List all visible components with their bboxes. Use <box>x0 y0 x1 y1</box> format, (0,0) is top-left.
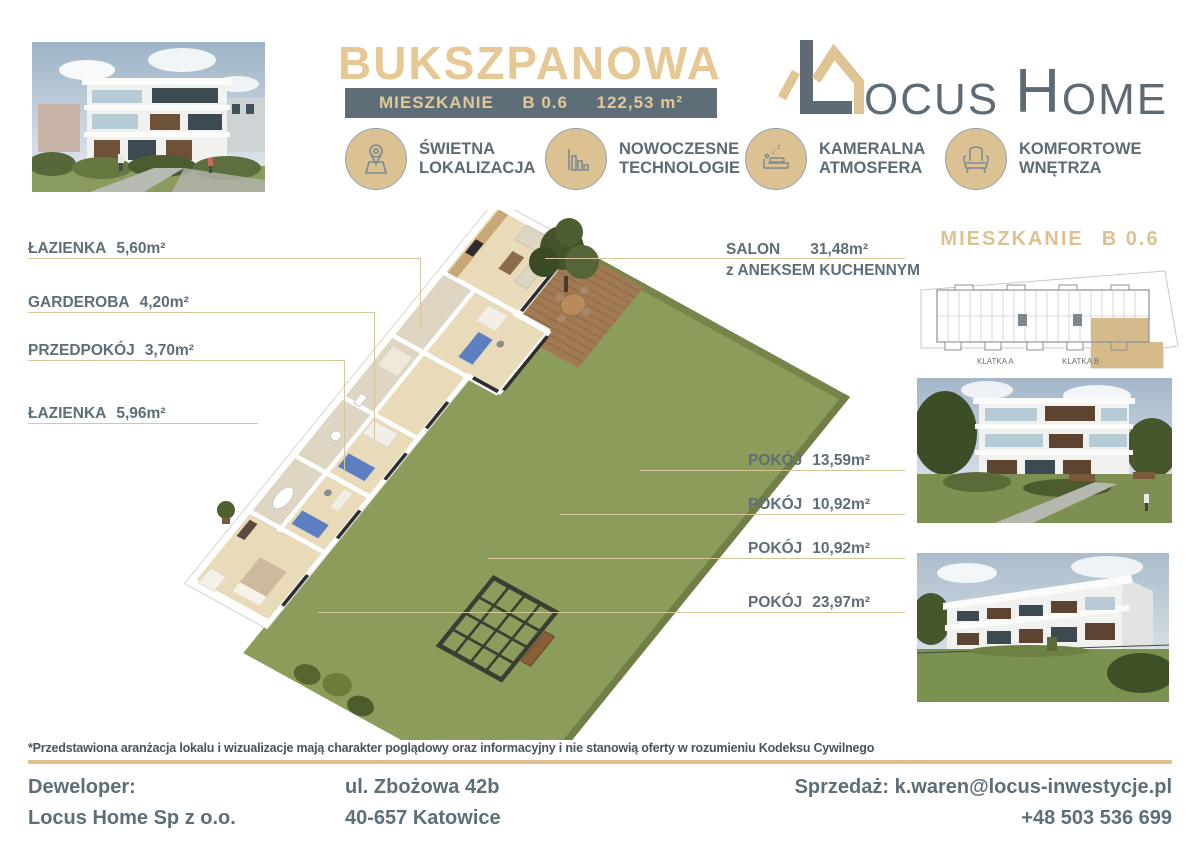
room-label-lazienka-2: ŁAZIENKA5,96m² <box>28 405 165 423</box>
building-photo-side-1 <box>917 378 1172 523</box>
developer-label: Deweloper: <box>28 772 236 803</box>
footer-divider <box>28 760 1172 764</box>
leader-line <box>28 360 344 361</box>
sales-email[interactable]: k.waren@locus-inwestycje.pl <box>895 776 1172 798</box>
sales-label: Sprzedaż: <box>795 776 889 798</box>
feature-location: ŚWIETNA LOKALIZACJA <box>345 128 545 190</box>
leader-line <box>28 312 374 313</box>
address-block: ul. Zbożowa 42b 40-657 Katowice <box>345 772 501 834</box>
room-label-pokoj-2: POKÓJ10,92m² <box>748 496 870 514</box>
leader-line <box>28 423 258 424</box>
locus-home-house-icon <box>772 34 864 120</box>
feature-list: ŚWIETNA LOKALIZACJA NOWOCZESNE TECHNOLOG… <box>345 128 1175 190</box>
feature-label-line2: LOKALIZACJA <box>419 159 535 178</box>
leader-line <box>560 514 905 515</box>
sales-email-line[interactable]: Sprzedaż: k.waren@locus-inwestycje.pl <box>795 772 1172 803</box>
leader-line <box>374 312 375 440</box>
leader-line <box>640 470 905 471</box>
unit-bar-unit: B 0.6 <box>522 93 568 113</box>
leader-line <box>488 558 905 559</box>
room-label-salon: SALON 31,48m² z ANEKSEM KUCHENNYM <box>726 241 868 280</box>
stairwell-b-label: KLATKA B <box>1062 357 1099 366</box>
stairwell-a-label: KLATKA A <box>977 357 1014 366</box>
feature-label-line1: KAMERALNA <box>819 140 925 159</box>
leader-line <box>420 258 421 328</box>
leader-line <box>318 612 905 613</box>
feature-label-line2: WNĘTRZA <box>1019 159 1142 178</box>
logo-text-ocus: OCUS <box>864 80 999 120</box>
building-photo-side-2 <box>917 553 1169 702</box>
apartment-3d-floor-plan <box>180 210 870 740</box>
developer-block: Deweloper: Locus Home Sp z o.o. <box>28 772 236 834</box>
sales-contact-block: Sprzedaż: k.waren@locus-inwestycje.pl +4… <box>795 772 1172 834</box>
unit-info-bar: MIESZKANIE B 0.6 122,53 m² <box>345 88 717 118</box>
sales-phone: +48 503 536 699 <box>795 803 1172 834</box>
page-title: BUKSZPANOWA <box>300 36 760 90</box>
developer-name: Locus Home Sp z o.o. <box>28 803 236 834</box>
svg-text:z: z <box>777 144 781 151</box>
bar-chart-icon <box>545 128 607 190</box>
room-label-pokoj-4: POKÓJ23,97m² <box>748 594 870 612</box>
address-city: 40-657 Katowice <box>345 803 501 834</box>
room-label-pokoj-1: POKÓJ13,59m² <box>748 452 870 470</box>
feature-label-line1: ŚWIETNA <box>419 140 535 159</box>
leader-line <box>344 360 345 470</box>
logo-text-ome: OME <box>1062 80 1168 120</box>
armchair-icon <box>945 128 1007 190</box>
address-street: ul. Zbożowa 42b <box>345 772 501 803</box>
location-pin-icon <box>345 128 407 190</box>
logo-text-h: H <box>1015 65 1062 120</box>
feature-label-line1: KOMFORTOWE <box>1019 140 1142 159</box>
feature-technology: NOWOCZESNE TECHNOLOGIE <box>545 128 745 190</box>
room-label-lazienka-1: ŁAZIENKA5,60m² <box>28 240 165 258</box>
unit-bar-label: MIESZKANIE <box>379 93 494 113</box>
sleep-bed-icon: z z <box>745 128 807 190</box>
building-photo-header <box>32 42 265 192</box>
company-logo: OCUS H OME <box>772 34 1168 120</box>
room-label-garderoba: GARDEROBA4,20m² <box>28 294 189 312</box>
feature-interiors: KOMFORTOWE WNĘTRZA <box>945 128 1145 190</box>
feature-label-line1: NOWOCZESNE <box>619 140 740 159</box>
brochure-page: BUKSZPANOWA MIESZKANIE B 0.6 122,53 m² O… <box>0 0 1200 848</box>
unit-bar-area: 122,53 m² <box>596 93 683 113</box>
feature-atmosphere: z z KAMERALNA ATMOSFERA <box>745 128 945 190</box>
building-floor-locator-plan: KLATKA A KLATKA B <box>915 260 1185 378</box>
feature-label-line2: ATMOSFERA <box>819 159 925 178</box>
room-label-pokoj-3: POKÓJ10,92m² <box>748 540 870 558</box>
room-label-przedpokoj: PRZEDPOKÓJ3,70m² <box>28 342 194 360</box>
feature-label-line2: TECHNOLOGIE <box>619 159 740 178</box>
leader-line <box>28 258 420 259</box>
svg-text:z: z <box>772 150 775 156</box>
disclaimer-text: *Przedstawiona aranżacja lokalu i wizual… <box>28 741 928 755</box>
sidebar-title: MIESZKANIEB 0.6 <box>915 228 1185 251</box>
